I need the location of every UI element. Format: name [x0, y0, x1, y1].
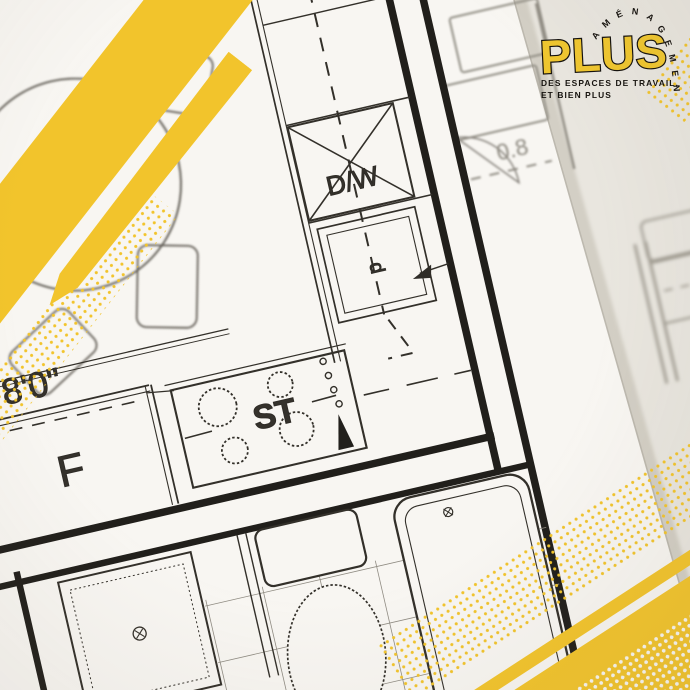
- logo-tagline-line2: ET BIEN PLUS: [541, 90, 612, 100]
- logo-graphic: AMÉNAGEMENT PLUS DES ESPACES DE TRAVAIL,…: [538, 4, 690, 108]
- logo-wordmark: PLUS: [539, 24, 669, 84]
- logo: AMÉNAGEMENT PLUS DES ESPACES DE TRAVAIL,…: [538, 4, 690, 108]
- logo-tagline-line1: DES ESPACES DE TRAVAIL,: [541, 78, 679, 88]
- blueprint-photo-post: 0.8: [0, 0, 690, 690]
